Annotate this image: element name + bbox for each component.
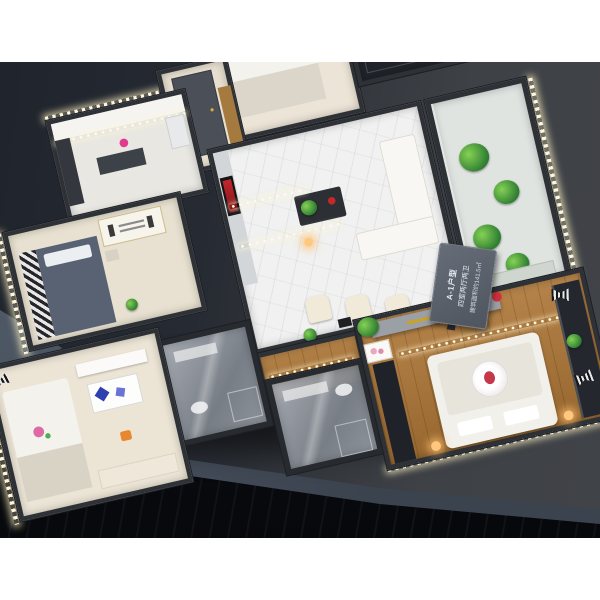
balcony-plant-1 — [456, 140, 492, 174]
nightlight-right — [563, 410, 575, 422]
plaque-figure-left — [107, 224, 115, 237]
pillow-2 — [503, 405, 540, 426]
refrigerator — [165, 114, 191, 150]
unit-info-placard: A-1户型 四室两厅两卫 建筑面积约141.5㎡ — [429, 242, 498, 329]
toilet-2 — [334, 382, 354, 397]
rug-red-motif — [483, 370, 496, 385]
bed-b — [2, 378, 93, 503]
nightstand-a — [105, 249, 120, 262]
rose-leaf — [45, 433, 51, 439]
page: { "placard": { "lines": ["A-1户型", "四室两厅两… — [0, 0, 600, 600]
floor-lamp — [303, 237, 313, 247]
pink-bloom-2 — [378, 348, 384, 354]
glazing-panel — [353, 62, 426, 73]
low-cabinet — [98, 452, 180, 489]
table-plant — [299, 199, 318, 217]
pillow-1 — [457, 415, 494, 436]
bathtub — [334, 418, 373, 457]
bed-b-blanket — [17, 443, 92, 502]
bedroom-b — [0, 328, 193, 521]
wall-art-plaque — [97, 205, 166, 247]
master-bed — [426, 331, 559, 449]
door-handle — [210, 108, 214, 112]
kitchen-counter — [55, 138, 85, 207]
plaque-figure-right — [146, 215, 154, 228]
red-vase — [327, 196, 336, 205]
master-window — [551, 280, 600, 419]
placard-text: A-1户型 四室两厅两卫 建筑面积约141.5㎡ — [430, 243, 496, 328]
model-photograph: A-1户型 四室两厅两卫 建筑面积约141.5㎡ — [0, 62, 600, 538]
shower — [227, 386, 263, 422]
bedroom-a — [3, 192, 207, 351]
bed-a — [19, 236, 117, 340]
green-toy — [125, 297, 139, 311]
blue-triangle-2 — [116, 387, 126, 397]
vanity — [173, 342, 218, 362]
pink-bloom-1 — [370, 347, 378, 355]
vanity-2 — [282, 381, 329, 402]
nightlight-left — [430, 440, 442, 452]
apartment-scale-model — [0, 62, 600, 538]
rose-on-bed — [32, 425, 45, 438]
dining-chair-1 — [304, 293, 333, 324]
toilet — [190, 400, 210, 415]
curtain-bow — [0, 372, 11, 390]
blue-artwork — [86, 373, 143, 414]
tv-wall — [213, 150, 258, 286]
floor-led-2 — [238, 222, 340, 250]
kitchen-island — [96, 147, 146, 175]
orange-bag — [120, 430, 133, 442]
balcony-plant-2 — [491, 178, 522, 207]
blue-triangle-1 — [95, 387, 110, 402]
dining-placemat-1 — [338, 317, 353, 328]
bed-blanket — [226, 63, 327, 120]
lobby — [340, 62, 477, 86]
pink-bowl — [119, 138, 129, 148]
